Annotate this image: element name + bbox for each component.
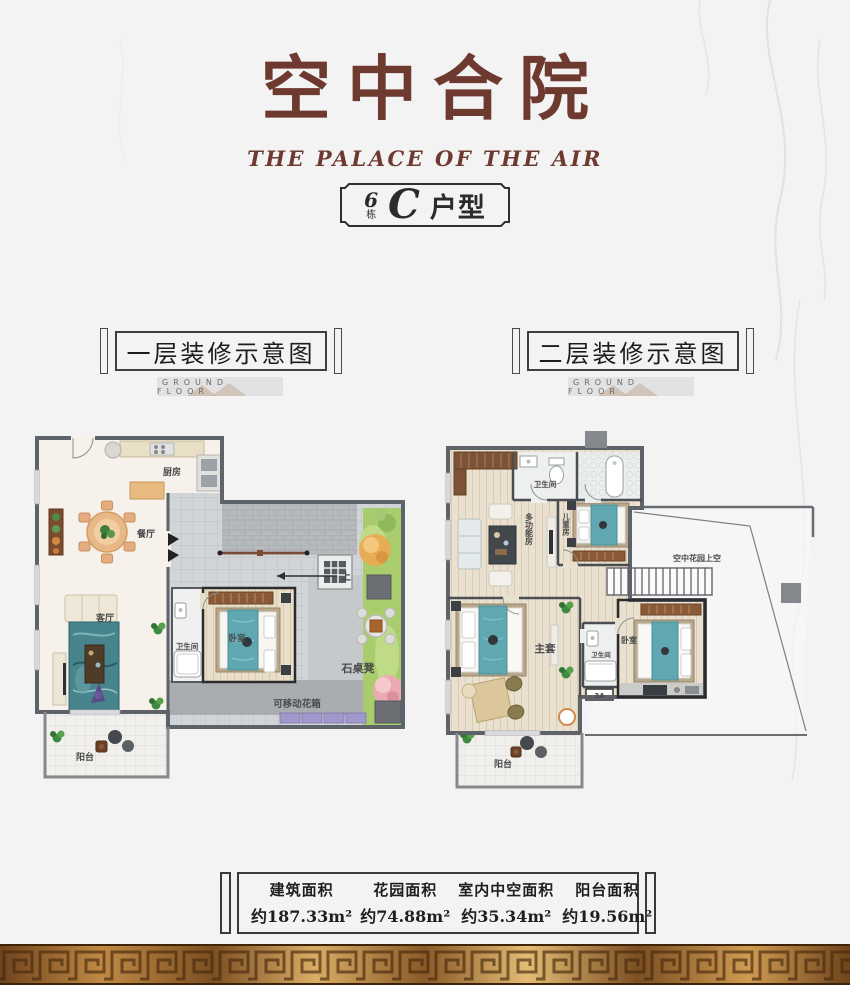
chimney-block <box>585 431 607 448</box>
header-side-bar <box>100 328 108 374</box>
stat-building-area: 建筑面积 约187.33m² <box>247 877 356 929</box>
bathroom-top-label: 卫生间 <box>534 479 557 489</box>
floor1-header-label: 一层装修示意图 <box>115 331 327 371</box>
badge-building-unit: 栋 <box>366 211 376 221</box>
staircase <box>607 568 712 595</box>
unit-badge: 6 栋 C 户型 <box>339 182 511 228</box>
balcony-label: 阳台 <box>76 751 94 763</box>
ac-box-label: 3A <box>594 692 605 700</box>
header-side-bar <box>334 328 342 374</box>
area-stats: 建筑面积 约187.33m² 花园面积 约74.88m² 室内中空面积 约35.… <box>220 872 656 934</box>
bedroom-label: 卧室 <box>228 633 246 644</box>
floor2-header-label: 二层装修示意图 <box>527 331 739 371</box>
kids-room-label: 儿童房 <box>561 513 570 537</box>
dining-label: 餐厅 <box>136 528 155 540</box>
kitchen-label: 厨房 <box>163 466 181 478</box>
courtyard-brick-paving <box>222 502 357 555</box>
kids-room-furniture <box>567 501 629 561</box>
multifunction-label: 多功能房 <box>525 512 534 546</box>
page-subtitle: THE PALACE OF THE AIR <box>0 146 850 171</box>
movable-planter-label: 可移动花箱 <box>273 698 321 710</box>
badge-type-letter: C <box>388 187 420 223</box>
floor1-plan: 厨房 餐厅 客厅 卫生间 卧室 石桌凳 可移动花箱 阳台 上 <box>25 425 415 795</box>
poster-page: 空中合院 THE PALACE OF THE AIR 6 栋 C 户型 一层装修… <box>0 0 850 985</box>
floor1-subheader: GROUND FLOOR <box>157 377 283 396</box>
living-label: 客厅 <box>95 612 114 624</box>
stat-void-area: 室内中空面积 约35.34m² <box>454 877 558 929</box>
page-title: 空中合院 <box>0 50 850 127</box>
bathroom-label: 卫生间 <box>176 641 199 651</box>
stat-balcony-area: 阳台面积 约19.56m² <box>558 877 656 929</box>
greek-key-border <box>0 944 850 985</box>
master-suite-label: 主套 <box>535 642 556 655</box>
sky-garden-void-label: 空中花园上空 <box>673 553 721 563</box>
stone-table-label: 石桌凳 <box>341 661 376 675</box>
floor2-header: 二层装修示意图 <box>512 328 754 374</box>
stats-side-bar <box>220 872 231 934</box>
header-side-bar <box>746 328 754 374</box>
stats-box: 建筑面积 约187.33m² 花园面积 约74.88m² 室内中空面积 约35.… <box>237 872 639 934</box>
balcony-label: 阳台 <box>494 758 512 770</box>
badge-building-stack: 6 栋 <box>364 190 378 221</box>
stats-side-bar <box>645 872 656 934</box>
floor2-plan: 卫生间 多功能房 儿童房 空中花园上空 主套 卫生间 卧室 阳台 3A <box>445 425 835 795</box>
balcony-floor <box>459 733 580 785</box>
stat-garden-area: 花园面积 约74.88m² <box>356 877 454 929</box>
badge-building-number: 6 <box>364 190 378 210</box>
floor1-header: 一层装修示意图 <box>100 328 342 374</box>
bathroom-master-label: 卫生间 <box>591 650 611 659</box>
badge-type-suffix: 户型 <box>430 186 486 225</box>
header-side-bar <box>512 328 520 374</box>
bedroom2-label: 卧室 <box>621 635 637 645</box>
floor2-subheader: GROUND FLOOR <box>568 377 694 396</box>
stairs-up-label: 上 <box>341 570 351 583</box>
